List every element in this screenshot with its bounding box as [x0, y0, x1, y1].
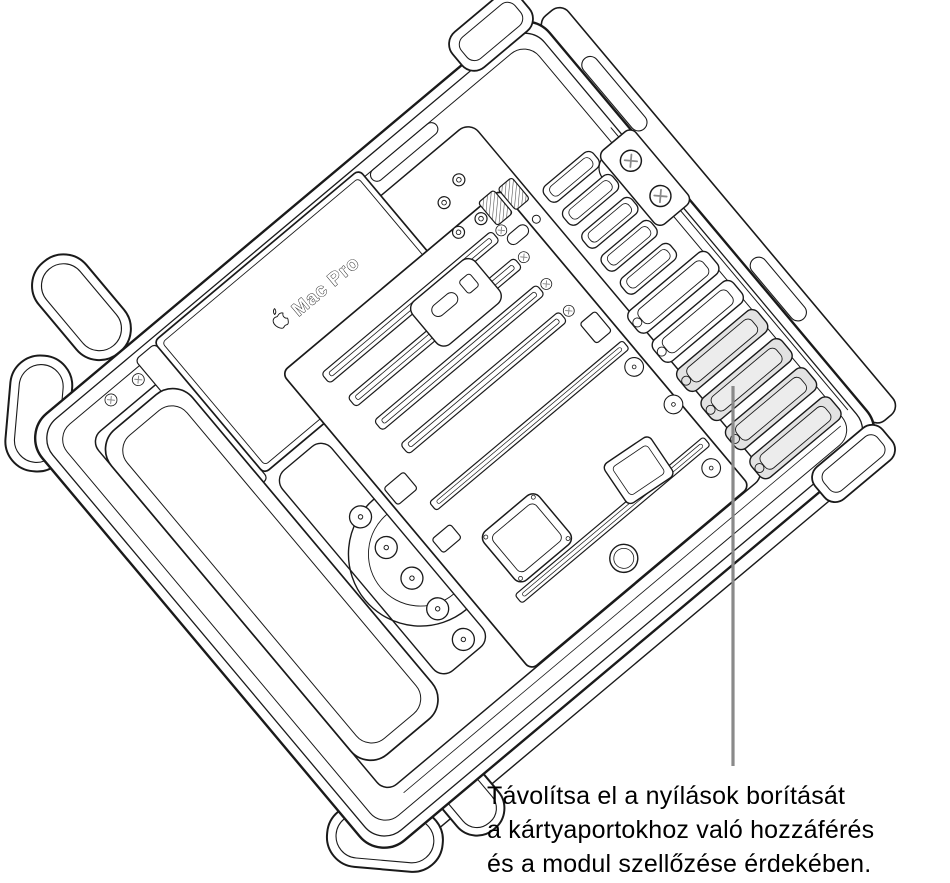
caption-line: a kártyaportokhoz való hozzáférés [487, 813, 874, 847]
mac-pro-open-illustration: Mac Pro [0, 0, 950, 883]
caption-line: Távolítsa el a nyílások borítását [487, 779, 874, 813]
caption-line: és a modul szellőzése érdekében. [487, 847, 874, 881]
callout-caption: Távolítsa el a nyílások borítását a kárt… [487, 779, 874, 881]
chassis-group: Mac Pro [0, 0, 940, 883]
illustration-canvas: Mac Pro [0, 0, 950, 883]
